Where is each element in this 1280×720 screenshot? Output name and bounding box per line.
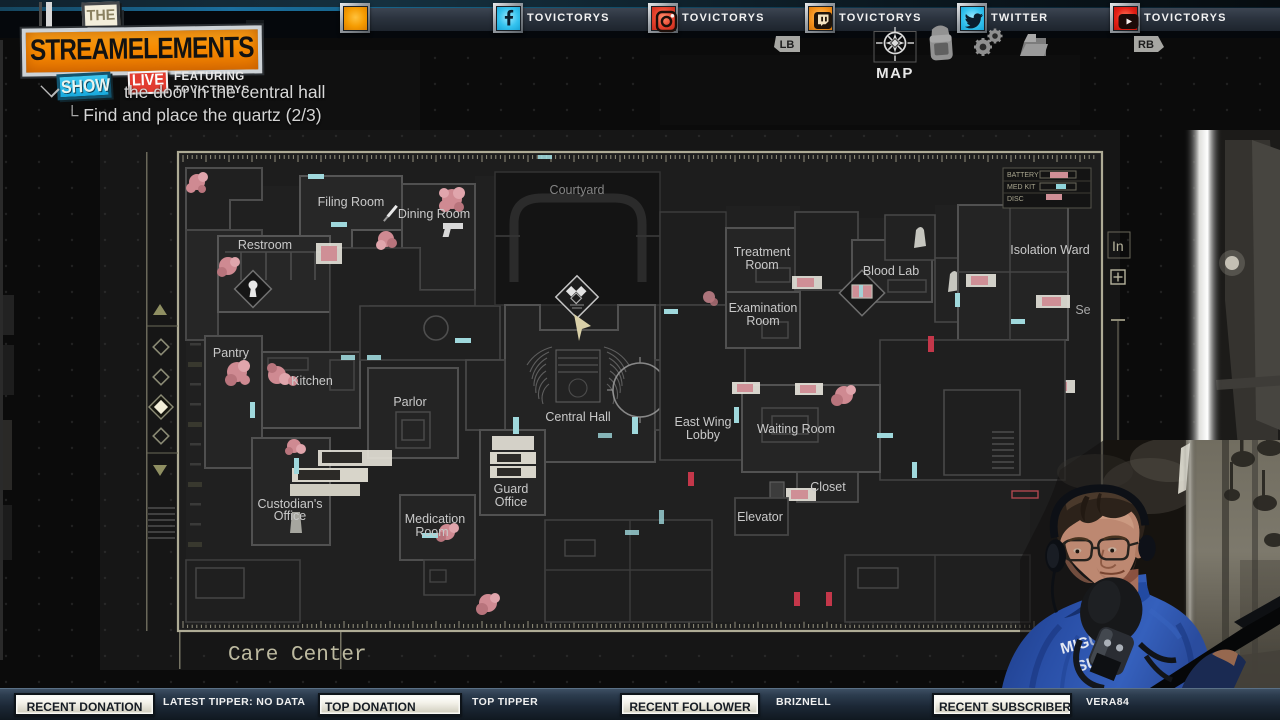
svg-text:Elevator: Elevator	[737, 510, 783, 524]
svg-text:Examination: Examination	[729, 301, 798, 315]
svg-text:Central Hall: Central Hall	[545, 410, 610, 424]
svg-text:DISC: DISC	[1007, 196, 1024, 203]
svg-text:RB: RB	[1138, 39, 1154, 51]
svg-text:In: In	[1112, 238, 1124, 254]
svg-text:Restroom: Restroom	[238, 238, 292, 252]
svg-text:East Wing: East Wing	[675, 415, 732, 429]
svg-text:Filing Room: Filing Room	[318, 195, 385, 209]
svg-text:Courtyard: Courtyard	[550, 183, 605, 197]
svg-text:Parlor: Parlor	[393, 395, 426, 409]
svg-text:Lobby: Lobby	[686, 428, 721, 442]
svg-text:Office: Office	[495, 495, 527, 509]
svg-text:Kitchen: Kitchen	[291, 374, 333, 388]
svg-text:Closet: Closet	[810, 480, 846, 494]
svg-text:Se: Se	[1075, 303, 1090, 317]
svg-text:Room: Room	[415, 525, 448, 539]
svg-text:MED KIT: MED KIT	[1007, 184, 1036, 191]
svg-text:LB: LB	[780, 39, 795, 51]
svg-text:Pantry: Pantry	[213, 346, 250, 360]
svg-text:BATTERY: BATTERY	[1007, 172, 1039, 179]
svg-text:Medication: Medication	[405, 512, 465, 526]
svg-text:Care Center: Care Center	[228, 644, 367, 667]
svg-text:Dining Room: Dining Room	[398, 207, 470, 221]
svg-text:MAP: MAP	[876, 65, 914, 82]
svg-text:Guard: Guard	[494, 482, 529, 496]
svg-text:Blood Lab: Blood Lab	[863, 264, 919, 278]
svg-text:Isolation Ward: Isolation Ward	[1010, 243, 1089, 257]
svg-text:Treatment: Treatment	[734, 245, 791, 259]
svg-text:Waiting Room: Waiting Room	[757, 422, 835, 436]
svg-text:Room: Room	[746, 314, 779, 328]
svg-text:Room: Room	[745, 258, 778, 272]
svg-text:Office: Office	[274, 509, 306, 523]
